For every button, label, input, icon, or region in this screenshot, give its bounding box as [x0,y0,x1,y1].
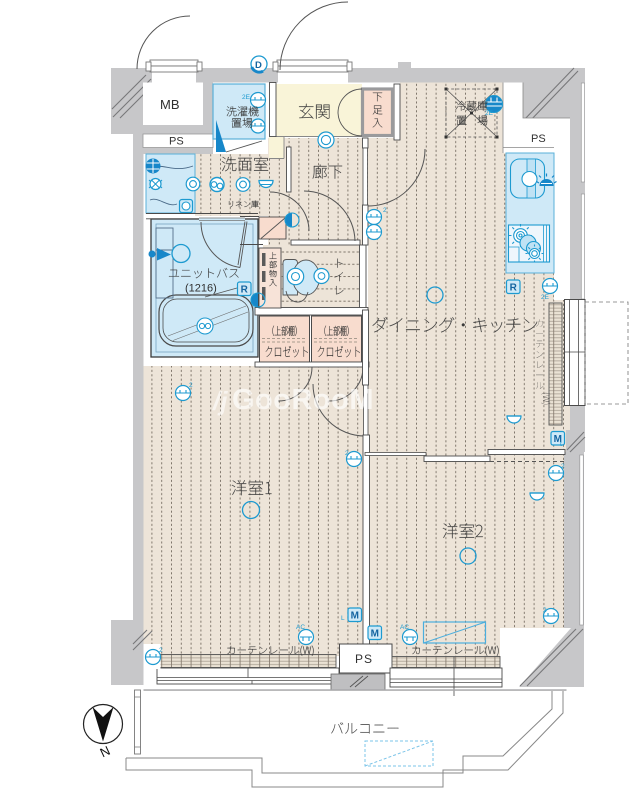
svg-text:M: M [351,610,359,621]
svg-text:M: M [371,628,379,639]
svg-text:R: R [510,282,518,293]
svg-text:2: 2 [189,382,193,389]
svg-text:2: 2 [159,647,163,654]
svg-text:2: 2 [561,463,565,470]
svg-text:PS: PS [355,652,373,666]
svg-text:AC: AC [400,624,409,631]
svg-text:D: D [255,60,262,71]
svg-text:MB: MB [160,97,180,112]
svg-text:(1216): (1216) [185,283,217,295]
svg-text:AC: AC [296,624,305,631]
svg-text:t: t [560,441,562,448]
svg-text:PS: PS [531,133,546,145]
svg-text:2: 2 [543,607,547,614]
svg-text:/j: /j [212,386,228,416]
svg-text:2E: 2E [242,94,251,101]
svg-text:2: 2 [383,207,387,214]
svg-text:L: L [341,615,345,622]
svg-text:PS: PS [169,136,184,148]
svg-text:2: 2 [345,450,349,457]
svg-text:GooRooM: GooRooM [232,384,374,416]
svg-text:2E: 2E [541,294,550,301]
svg-text:R: R [241,284,249,295]
